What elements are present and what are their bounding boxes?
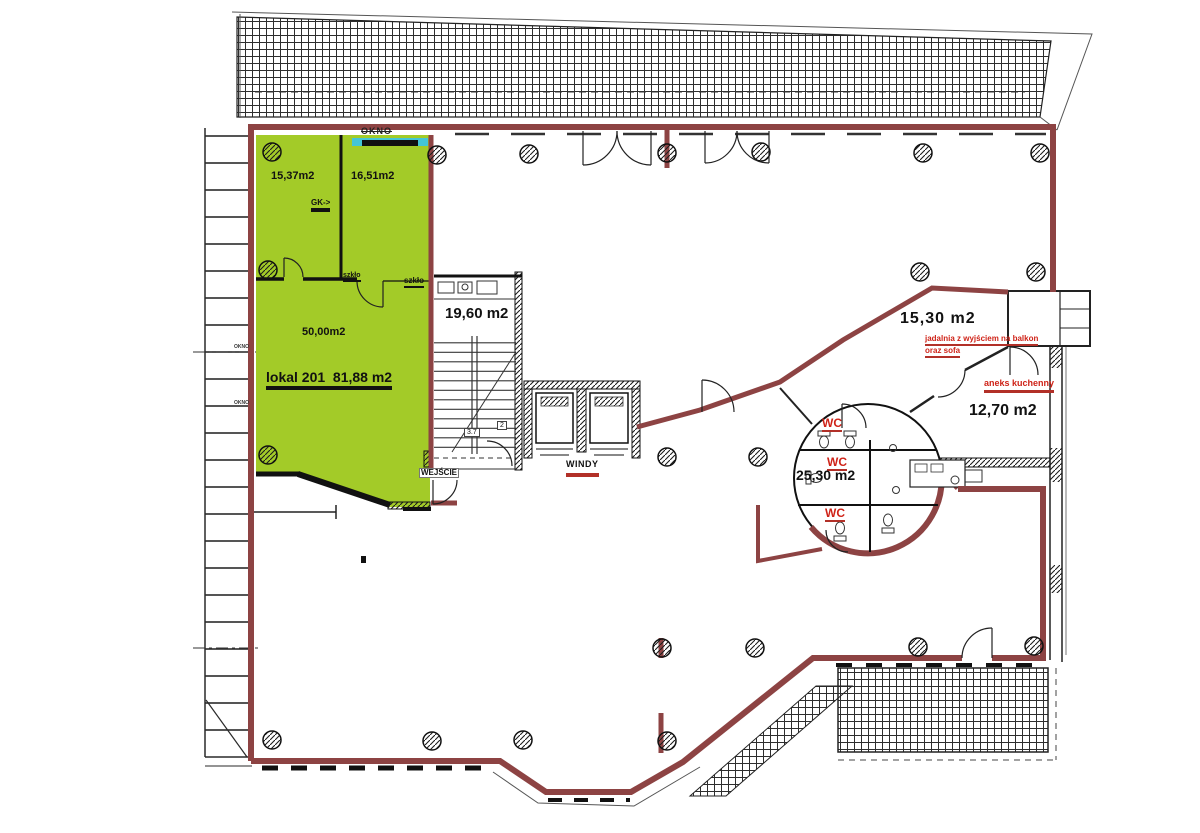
label-room-50-00: 50,00m2 xyxy=(302,327,345,338)
label-room-15-30: 15,30 m2 xyxy=(900,311,976,327)
label-jadalnia-line1: jadalnia z wyjściem na balkon xyxy=(925,335,1038,346)
label-room-19-60: 19,60 m2 xyxy=(445,306,508,321)
label-wejscie: WEJŚCIE xyxy=(419,468,459,478)
label-room-12-70: 12,70 m2 xyxy=(969,403,1037,419)
label-okno-side-1: OKNO xyxy=(234,345,249,350)
label-unit-title: lokal 201 81,88 m2 xyxy=(266,370,392,390)
label-okno-side-2: OKNO xyxy=(234,401,249,406)
unit-201-green-area xyxy=(256,135,430,509)
label-szklo-left: szkło xyxy=(343,272,361,282)
top-terrace-hatch xyxy=(232,12,1092,130)
staircase xyxy=(424,272,522,470)
elevators xyxy=(524,381,640,458)
label-aneks-kuchenny: aneks kuchenny xyxy=(984,379,1054,393)
label-jadalnia-line2: oraz sofa xyxy=(925,347,960,358)
interior-lines xyxy=(254,505,431,563)
label-okno-top: OKNO xyxy=(361,127,392,136)
label-wc-bottom: WC xyxy=(825,507,845,522)
label-room-16-51: 16,51m2 xyxy=(351,171,394,182)
floor-plan: OKNO 15,37m2 16,51m2 GK-> szkło szkło 50… xyxy=(0,0,1200,833)
label-dim-2: 2 xyxy=(497,421,507,430)
label-room-25-30: 25,30 m2 xyxy=(796,468,855,482)
label-windy: WINDY xyxy=(566,460,599,477)
label-wc-top: WC xyxy=(822,417,842,432)
label-dim-3-7: 3.7 xyxy=(464,428,480,437)
label-gk: GK-> xyxy=(311,199,330,212)
right-outer-wall xyxy=(1050,292,1066,662)
label-room-15-37: 15,37m2 xyxy=(271,171,314,182)
label-szklo-right: szkło xyxy=(404,277,424,288)
